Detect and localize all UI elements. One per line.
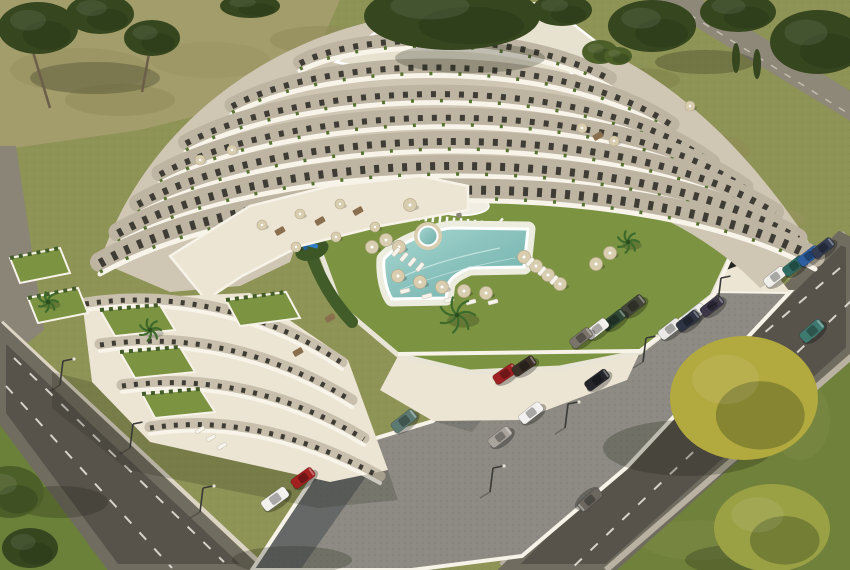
parasol-tip	[689, 105, 691, 107]
lamp-head	[577, 400, 580, 403]
lamp-head	[655, 334, 658, 337]
palm-crown	[148, 328, 152, 332]
cast-shadow	[30, 62, 160, 94]
parasol-tip	[295, 246, 297, 248]
garden	[100, 305, 175, 336]
garden	[120, 347, 195, 378]
parasol-tip	[199, 159, 201, 161]
parasol-tip	[535, 265, 538, 268]
tree	[670, 336, 818, 460]
lamp-head	[502, 464, 505, 467]
canopy-light	[10, 10, 46, 31]
parasol-tip	[485, 292, 488, 295]
parasol-tip	[374, 226, 376, 228]
lamp-head	[730, 274, 733, 277]
parasol-tip	[559, 283, 562, 286]
palm-crown	[626, 240, 630, 244]
parasol-tip	[261, 224, 263, 226]
parasol-tip	[419, 281, 422, 284]
canopy-light	[608, 50, 621, 57]
lamp-head	[72, 357, 75, 360]
parasol-tip	[299, 213, 301, 215]
tree	[0, 2, 78, 54]
cypress-tree	[732, 43, 740, 73]
parasol-tip	[463, 290, 466, 293]
parasol-tip	[613, 140, 615, 142]
canopy-light	[731, 497, 783, 532]
palm-crown	[46, 300, 50, 304]
canopy-light	[587, 44, 603, 54]
parasol-tip	[397, 275, 400, 278]
screenshot-stage: Aerial 3D rendering of a white terraced …	[0, 0, 850, 570]
canopy-light	[692, 355, 759, 405]
parasol-tip	[335, 236, 337, 238]
cast-shadow	[655, 50, 755, 74]
lamp-head	[142, 420, 145, 423]
parasol-tip	[441, 286, 444, 289]
parasol-tip	[231, 149, 233, 151]
lamp-head	[212, 484, 215, 487]
parasol-tip	[371, 246, 374, 249]
spa-pool	[419, 227, 438, 246]
tree	[2, 528, 58, 568]
tree	[124, 20, 180, 56]
parasol-tip	[595, 263, 598, 266]
parasol-tip	[609, 252, 612, 255]
aerial-render	[0, 0, 850, 570]
canopy-light	[621, 8, 661, 29]
tree	[604, 47, 632, 65]
canopy-light	[10, 534, 35, 550]
parasol-tip	[339, 203, 341, 205]
parasol-tip	[523, 256, 526, 259]
canopy-light	[784, 20, 827, 46]
palm-crown	[455, 313, 459, 317]
parasol-tip	[409, 204, 412, 207]
tree	[714, 484, 830, 570]
parasol-tip	[385, 239, 388, 242]
canopy-light	[76, 0, 107, 16]
parasol-tip	[581, 127, 583, 129]
tree	[608, 0, 696, 52]
parasol-tip	[547, 274, 550, 277]
cypress-tree	[753, 49, 761, 79]
canopy-light	[132, 25, 157, 39]
